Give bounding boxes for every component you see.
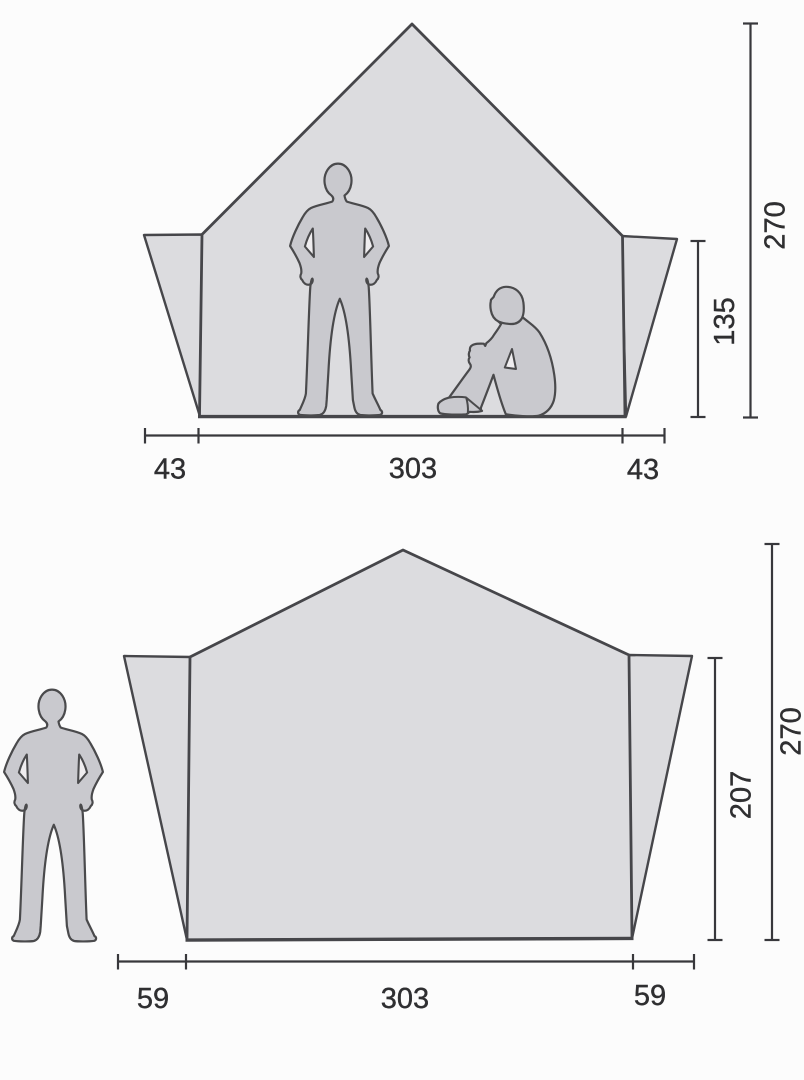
svg-text:43: 43 [154, 454, 186, 486]
svg-text:270: 270 [760, 201, 792, 249]
svg-text:135: 135 [709, 297, 741, 345]
svg-text:207: 207 [726, 771, 758, 819]
svg-text:43: 43 [627, 454, 659, 486]
svg-text:270: 270 [776, 707, 804, 755]
svg-text:303: 303 [381, 983, 429, 1015]
svg-text:59: 59 [137, 983, 169, 1015]
svg-text:303: 303 [389, 453, 437, 485]
svg-text:59: 59 [634, 980, 666, 1012]
